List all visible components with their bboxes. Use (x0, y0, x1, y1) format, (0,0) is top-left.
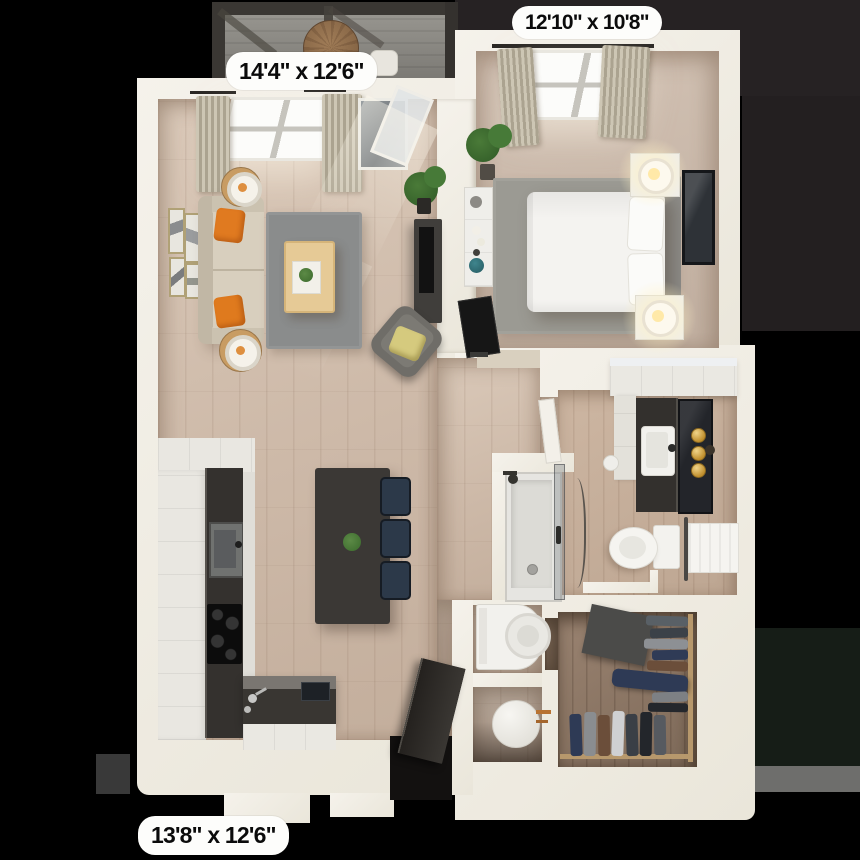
hanging-clothes-item (598, 715, 611, 756)
vanity-sconce-light (691, 446, 706, 461)
nightstand-lamp-bulb (648, 168, 660, 180)
toilet-seat (619, 536, 646, 559)
hanging-clothes-item (648, 703, 688, 713)
vanity-sink-basin (646, 432, 668, 468)
vanity-faucet (668, 444, 676, 452)
kitchen-counter (205, 468, 243, 738)
curtain (598, 45, 651, 139)
peninsula-sink (301, 682, 330, 701)
hanging-clothes-item (584, 712, 597, 756)
background-band (755, 628, 860, 770)
hanging-clothes-item (569, 714, 582, 756)
potted-plant-leaves (424, 166, 446, 188)
hanging-clothes-item (646, 615, 688, 626)
wall-art (169, 257, 186, 297)
dining-chair (380, 519, 411, 558)
shower-head (508, 474, 518, 484)
dimension-label-kitchen: 13'8" x 12'6" (138, 816, 289, 855)
exterior-wall-step (330, 793, 394, 817)
peninsula-cabinets (243, 724, 336, 750)
dresser-decor (473, 249, 480, 256)
dining-chair (380, 561, 411, 600)
background-band (96, 754, 130, 794)
toilet-paper-roll (603, 455, 619, 471)
plant-pot (417, 198, 431, 214)
hanging-clothes-item (652, 650, 688, 661)
shower-glass-handle (556, 526, 561, 544)
bedroom-wall-art (682, 170, 715, 265)
kitchen-cabinets-west (158, 470, 206, 740)
shower-curb (583, 582, 657, 593)
vanity-sconce-light (691, 428, 706, 443)
peninsula-faucet-handle (244, 706, 251, 713)
hanging-clothes-item (611, 711, 625, 756)
cooktop (207, 604, 242, 664)
kitchen-sink-faucet (235, 541, 242, 548)
vanity-upper-cabinets (610, 358, 737, 396)
dining-centerpiece-plant (343, 533, 361, 551)
throw-pillow-orange (213, 294, 246, 329)
washer-control-strip (479, 608, 487, 664)
dining-chair (380, 477, 411, 516)
background-band (753, 766, 860, 792)
washer-door-glass (517, 625, 539, 647)
hanging-clothes-item (644, 639, 688, 650)
bedroom-tv-stand (470, 352, 488, 357)
potted-plant-leaves (488, 124, 512, 148)
hanging-clothes-item (654, 715, 667, 755)
table-lamp-bulb (238, 183, 247, 192)
throw-pillow-orange (213, 207, 246, 243)
dimension-label-bedroom: 12'10" x 10'8" (512, 6, 662, 39)
table-lamp-bulb (236, 346, 245, 355)
curtain-rod (190, 91, 236, 94)
hanging-clothes-item (650, 627, 688, 638)
shower-curb (650, 570, 658, 593)
water-heater-pipe (536, 710, 551, 714)
hanging-clothes-item (640, 712, 653, 756)
closet-rod-trim (688, 614, 693, 762)
dresser-candle (472, 226, 481, 235)
washer-dryer (476, 604, 542, 670)
dresser-candle (477, 238, 485, 246)
dresser-lamp (470, 196, 482, 208)
laundry-niche-divider-wall (473, 673, 542, 687)
dresser-vase-teal (469, 258, 484, 273)
door-knob (705, 445, 715, 455)
hanging-clothes-item (647, 660, 688, 671)
background-band (742, 96, 860, 331)
hanging-clothes-item (652, 691, 688, 702)
nightstand-lamp-bulb (652, 310, 664, 322)
shower-drain (527, 564, 538, 575)
kitchen-cabinets-end (158, 438, 255, 472)
hanging-towel (688, 523, 739, 573)
wall-art (168, 208, 185, 254)
shower-hose (566, 478, 586, 588)
hanging-clothes-item (625, 714, 638, 756)
vanity-sconce-light (691, 463, 706, 478)
kitchen-sink-basin (214, 530, 236, 568)
dimension-label-living-room: 14'4" x 12'6" (226, 52, 377, 90)
water-heater-pipe (536, 720, 548, 723)
coffee-table-plant (299, 268, 313, 282)
tv (419, 227, 434, 293)
water-heater (492, 700, 540, 748)
floor-plan: 14'4" x 12'6" 12'10" x 10'8" 13'8" x 12'… (0, 0, 860, 860)
